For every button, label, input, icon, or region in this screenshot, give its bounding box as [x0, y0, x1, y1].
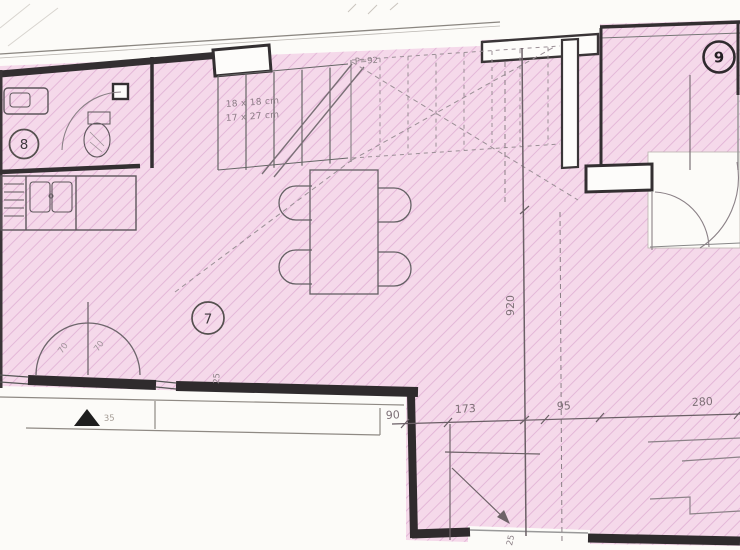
- room-9-label: 9: [714, 49, 724, 67]
- mid-wall-segment: [586, 164, 652, 192]
- vertical-wall-segment: [562, 39, 578, 168]
- dim-90: 90: [385, 408, 400, 422]
- dim-920: 920: [504, 295, 517, 316]
- dim-wall-post-25: 25: [212, 373, 223, 384]
- room-8-label: 8: [20, 137, 29, 153]
- dim-173: 173: [454, 402, 476, 416]
- doorway-opening: [648, 152, 740, 248]
- dim-threshold-35: 35: [104, 413, 115, 424]
- dim-95: 95: [556, 399, 571, 413]
- floor-plan-svg: 8 7 9 18 x 18 cm 17 x 27 cm P=92 920 90 …: [0, 0, 740, 550]
- stair-lintel-wall: [213, 45, 271, 76]
- room-7-label: 7: [204, 312, 213, 328]
- dim-280: 280: [691, 395, 713, 409]
- parapet-note: P=92: [355, 56, 379, 67]
- floor-plan-canvas: 8 7 9 18 x 18 cm 17 x 27 cm P=92 920 90 …: [0, 0, 740, 550]
